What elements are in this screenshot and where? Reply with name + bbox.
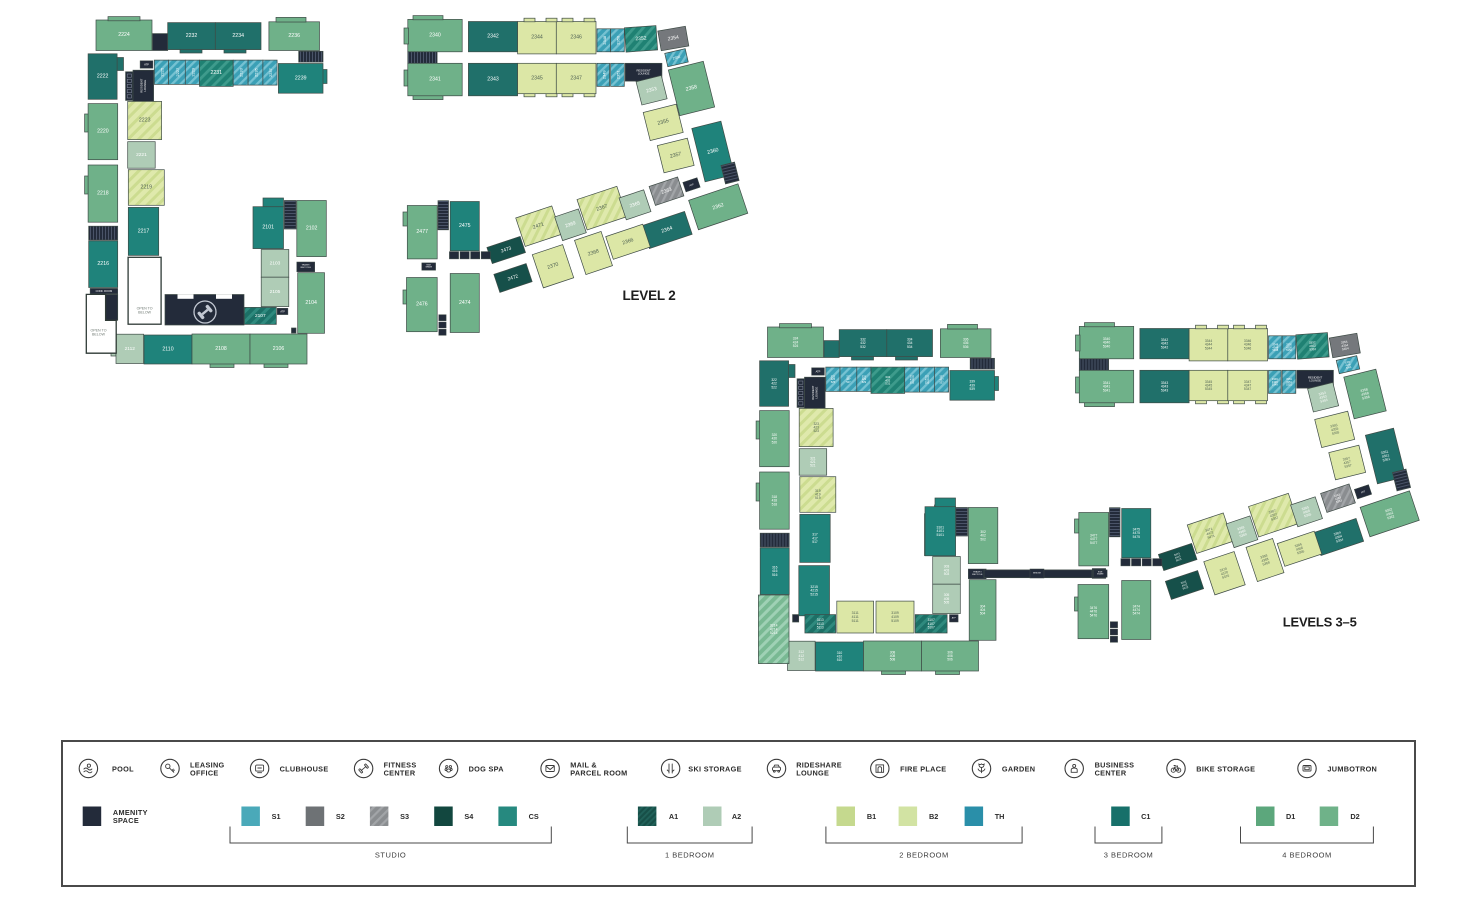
svg-text:2234: 2234 xyxy=(232,33,244,39)
svg-text:337437537: 337437537 xyxy=(939,374,944,384)
svg-text:LEVELS 3–5: LEVELS 3–5 xyxy=(1283,615,1357,630)
svg-text:334043405340: 334043405340 xyxy=(1103,337,1111,348)
svg-text:310410510: 310410510 xyxy=(837,651,843,662)
svg-text:2346: 2346 xyxy=(570,35,582,41)
svg-text:2347: 2347 xyxy=(570,76,582,82)
svg-text:CS: CS xyxy=(529,812,539,821)
svg-text:311141115111: 311141115111 xyxy=(852,611,859,623)
svg-text:347644765476: 347644765476 xyxy=(1090,606,1098,617)
svg-text:S4: S4 xyxy=(464,812,474,821)
svg-text:A1: A1 xyxy=(669,812,678,821)
svg-text:2342: 2342 xyxy=(487,34,499,40)
svg-text:2474: 2474 xyxy=(459,300,471,306)
svg-text:C1: C1 xyxy=(1141,812,1150,821)
svg-text:3 BEDROOM: 3 BEDROOM xyxy=(1104,851,1154,860)
svg-text:333433533: 333433533 xyxy=(910,374,915,384)
svg-text:2105: 2105 xyxy=(270,288,281,294)
svg-text:305405505: 305405505 xyxy=(944,593,950,604)
svg-text:B2: B2 xyxy=(929,812,938,821)
svg-text:2219: 2219 xyxy=(141,185,153,191)
svg-text:D1: D1 xyxy=(1286,812,1295,821)
svg-text:312412512: 312412512 xyxy=(799,650,805,661)
svg-text:B1: B1 xyxy=(867,812,876,821)
svg-text:S1: S1 xyxy=(272,812,281,821)
svg-text:2104: 2104 xyxy=(305,300,317,306)
svg-text:332432532: 332432532 xyxy=(860,337,866,348)
svg-text:310141015101: 310141015101 xyxy=(937,525,945,537)
svg-text:335243525352: 335243525352 xyxy=(1309,340,1317,351)
svg-text:2223: 2223 xyxy=(139,118,151,124)
svg-text:FIRE PLACE: FIRE PLACE xyxy=(900,764,946,773)
svg-text:2348: 2348 xyxy=(601,35,606,45)
svg-text:303403503: 303403503 xyxy=(944,565,950,576)
svg-text:2108: 2108 xyxy=(215,346,227,352)
svg-text:331431531: 331431531 xyxy=(885,375,890,386)
svg-text:339439539: 339439539 xyxy=(969,380,975,391)
svg-text:2220: 2220 xyxy=(97,129,109,135)
svg-text:329429529: 329429529 xyxy=(862,374,867,384)
svg-text:LEVEL 2: LEVEL 2 xyxy=(622,288,675,303)
svg-text:BRIDGE: BRIDGE xyxy=(1033,573,1041,575)
svg-text:2351: 2351 xyxy=(615,70,620,80)
svg-text:334243425342: 334243425342 xyxy=(1161,338,1169,349)
svg-text:2112: 2112 xyxy=(125,345,136,351)
svg-text:2236: 2236 xyxy=(288,33,300,39)
svg-text:325425525: 325425525 xyxy=(831,374,836,384)
svg-text:2477: 2477 xyxy=(416,229,428,235)
svg-text:317417517: 317417517 xyxy=(812,533,818,544)
svg-text:2350: 2350 xyxy=(615,35,620,45)
svg-text:327427527: 327427527 xyxy=(846,374,851,384)
svg-text:318418518: 318418518 xyxy=(772,495,778,506)
svg-text:319419519: 319419519 xyxy=(815,489,821,500)
svg-text:302402502: 302402502 xyxy=(980,530,986,541)
svg-text:2344: 2344 xyxy=(531,35,543,41)
svg-text:334434534: 334434534 xyxy=(907,337,913,348)
svg-text:308408508: 308408508 xyxy=(890,650,896,661)
svg-text:336436536: 336436536 xyxy=(963,338,969,349)
svg-text:2235: 2235 xyxy=(253,67,258,77)
svg-text:2224: 2224 xyxy=(118,32,130,38)
svg-text:316416516: 316416516 xyxy=(772,566,778,577)
svg-text:335043505350: 335043505350 xyxy=(1286,342,1292,352)
svg-text:347544755475: 347544755475 xyxy=(1133,528,1141,539)
svg-text:A2: A2 xyxy=(732,812,741,821)
svg-text:320420520: 320420520 xyxy=(772,433,778,444)
svg-text:ATP: ATP xyxy=(952,616,957,619)
svg-text:4 BEDROOM: 4 BEDROOM xyxy=(1282,851,1332,860)
svg-text:334343435343: 334343435343 xyxy=(1161,381,1169,392)
svg-text:2217: 2217 xyxy=(138,228,150,234)
svg-text:2229: 2229 xyxy=(190,67,195,77)
svg-text:ATP: ATP xyxy=(144,62,149,66)
svg-text:322422522: 322422522 xyxy=(771,378,777,389)
svg-text:334543455345: 334543455345 xyxy=(1205,380,1213,391)
svg-text:2218: 2218 xyxy=(97,191,109,197)
svg-text:2216: 2216 xyxy=(97,261,109,267)
svg-text:334143415341: 334143415341 xyxy=(1103,381,1111,392)
svg-text:2227: 2227 xyxy=(174,67,179,77)
svg-text:347744775477: 347744775477 xyxy=(1090,534,1098,545)
svg-text:CLUBHOUSE: CLUBHOUSE xyxy=(280,764,329,773)
svg-text:334643465346: 334643465346 xyxy=(1244,339,1252,350)
svg-text:DOG SPA: DOG SPA xyxy=(469,764,505,773)
svg-text:D2: D2 xyxy=(1350,812,1359,821)
svg-text:2107: 2107 xyxy=(255,312,266,318)
svg-text:JUMBOTRON: JUMBOTRON xyxy=(1327,764,1377,773)
svg-text:321421521: 321421521 xyxy=(810,456,816,467)
svg-text:2341: 2341 xyxy=(429,77,441,83)
svg-text:STUDIO: STUDIO xyxy=(375,851,406,860)
svg-text:CONF. ROOM: CONF. ROOM xyxy=(96,289,113,293)
svg-text:S2: S2 xyxy=(336,812,345,821)
svg-text:TH: TH xyxy=(995,812,1005,821)
svg-text:321542155215: 321542155215 xyxy=(810,585,818,597)
svg-text:BIKE STORAGE: BIKE STORAGE xyxy=(1196,764,1255,773)
svg-text:2103: 2103 xyxy=(270,260,281,266)
svg-text:2239: 2239 xyxy=(295,75,307,81)
svg-text:OPEN TOBELOW: OPEN TOBELOW xyxy=(137,307,153,315)
svg-text:TRASH /RECYCLE: TRASH /RECYCLE xyxy=(972,571,983,577)
svg-text:2233: 2233 xyxy=(238,67,243,77)
svg-text:324424524: 324424524 xyxy=(793,337,799,348)
svg-text:RESIDENTLOUNGE: RESIDENTLOUNGE xyxy=(140,78,147,92)
svg-text:334943495349: 334943495349 xyxy=(1272,376,1278,386)
svg-text:GARDEN: GARDEN xyxy=(1002,764,1035,773)
svg-text:S3: S3 xyxy=(400,812,409,821)
svg-text:2106: 2106 xyxy=(273,346,285,352)
svg-text:323423523: 323423523 xyxy=(813,422,819,433)
svg-text:ATP: ATP xyxy=(816,369,821,373)
svg-text:306406506: 306406506 xyxy=(947,650,953,661)
svg-text:SKI STORAGE: SKI STORAGE xyxy=(688,764,741,773)
svg-text:335435535: 335435535 xyxy=(925,374,930,384)
svg-text:2225: 2225 xyxy=(159,67,164,77)
svg-text:334843485348: 334843485348 xyxy=(1272,342,1278,352)
svg-text:2101: 2101 xyxy=(262,225,274,231)
svg-text:2222: 2222 xyxy=(97,74,109,80)
svg-text:304404504: 304404504 xyxy=(980,604,986,615)
svg-text:RESIDENTLOUNGE: RESIDENTLOUNGE xyxy=(811,385,818,399)
svg-text:2352: 2352 xyxy=(635,36,647,43)
svg-text:2237: 2237 xyxy=(268,67,273,77)
svg-text:2476: 2476 xyxy=(416,302,428,308)
svg-text:2345: 2345 xyxy=(531,76,543,82)
svg-text:2232: 2232 xyxy=(186,33,198,39)
svg-text:2221: 2221 xyxy=(136,151,147,157)
svg-text:2102: 2102 xyxy=(306,226,318,232)
svg-text:2349: 2349 xyxy=(601,70,606,80)
svg-text:2343: 2343 xyxy=(487,77,499,83)
svg-text:ATP: ATP xyxy=(280,310,285,313)
svg-text:335143515351: 335143515351 xyxy=(1286,376,1292,386)
svg-text:OPEN TOBELOW: OPEN TOBELOW xyxy=(90,329,106,337)
svg-text:TRASH /RECYCLE: TRASH /RECYCLE xyxy=(301,264,312,270)
svg-text:FITNESSCENTER: FITNESSCENTER xyxy=(384,760,417,777)
svg-text:2231: 2231 xyxy=(211,70,223,76)
svg-text:POOL: POOL xyxy=(112,764,134,773)
svg-text:321442145214: 321442145214 xyxy=(770,624,778,636)
svg-text:310941095109: 310941095109 xyxy=(891,611,899,623)
svg-text:RESIDENTLOUNGE: RESIDENTLOUNGE xyxy=(637,69,651,76)
svg-text:347444745474: 347444745474 xyxy=(1133,604,1141,615)
svg-text:RESIDENTLOUNGE: RESIDENTLOUNGE xyxy=(1308,376,1322,383)
svg-text:1 BEDROOM: 1 BEDROOM xyxy=(665,851,715,860)
svg-text:310741075107: 310741075107 xyxy=(928,618,935,629)
svg-text:2340: 2340 xyxy=(429,33,441,39)
svg-text:2110: 2110 xyxy=(162,347,173,353)
svg-text:2475: 2475 xyxy=(459,223,471,229)
svg-text:311341135113: 311341135113 xyxy=(817,618,824,629)
svg-text:334743475347: 334743475347 xyxy=(1244,380,1252,391)
svg-text:2 BEDROOM: 2 BEDROOM xyxy=(899,851,949,860)
svg-text:334443445344: 334443445344 xyxy=(1205,339,1213,350)
